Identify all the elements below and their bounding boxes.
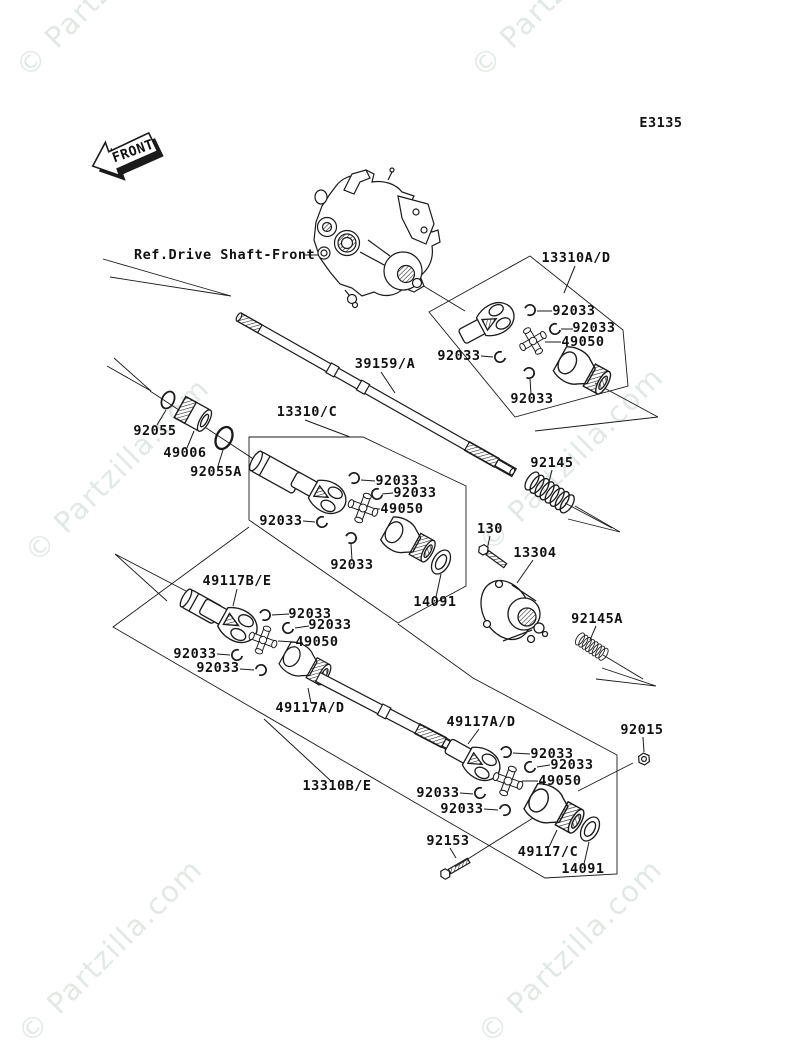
part-label-92033[interactable]: 92033 [393, 485, 436, 501]
part-label-39159A[interactable]: 39159/A [355, 356, 415, 372]
part-label-49006[interactable]: 49006 [163, 445, 206, 461]
yoke-49117C [522, 780, 589, 840]
nut-92015 [636, 752, 651, 766]
part-label-92033[interactable]: 92033 [550, 757, 593, 773]
part-label-13310BE[interactable]: 13310B/E [302, 778, 371, 794]
gearbox-drawing [314, 168, 440, 308]
bolt-92153 [439, 857, 471, 881]
part-label-92033[interactable]: 92033 [416, 785, 459, 801]
bearing-holder-13304 [471, 572, 547, 648]
watermark: © Partzilla.com [11, 852, 209, 1046]
part-label-14091[interactable]: 14091 [561, 861, 604, 877]
part-label-49117C[interactable]: 49117/C [518, 844, 578, 860]
part-label-49117AD[interactable]: 49117A/D [275, 700, 344, 716]
part-label-49117AD[interactable]: 49117A/D [446, 714, 515, 730]
part-label-92033[interactable]: 92033 [308, 617, 351, 633]
part-label-49050[interactable]: 49050 [295, 634, 338, 650]
spider-49050 [343, 488, 382, 527]
part-label-92033[interactable]: 92033 [259, 513, 302, 529]
part-label-92033[interactable]: 92033 [552, 303, 595, 319]
parts-diagram-page: © Partzilla.com © Partzilla.com © Partzi… [0, 0, 800, 1046]
part-label-92033[interactable]: 92033 [510, 391, 553, 407]
part-label-92033[interactable]: 92033 [437, 348, 480, 364]
part-label-92145A[interactable]: 92145A [571, 611, 623, 627]
part-label-13310AD[interactable]: 13310A/D [541, 250, 610, 266]
oring-92055A [212, 424, 236, 451]
watermark: © Partzilla.com [471, 852, 669, 1046]
part-label-92033[interactable]: 92033 [440, 801, 483, 817]
part-label-49050[interactable]: 49050 [561, 334, 604, 350]
part-label-92015[interactable]: 92015 [620, 722, 663, 738]
spider-49050 [513, 321, 552, 360]
diagram-code: E3135 [639, 115, 682, 131]
part-label-92145[interactable]: 92145 [530, 455, 573, 471]
parts-diagram: © Partzilla.com © Partzilla.com © Partzi… [0, 0, 800, 1046]
part-label-13304[interactable]: 13304 [513, 545, 556, 561]
part-label-49050[interactable]: 49050 [380, 501, 423, 517]
part-label-92153[interactable]: 92153 [426, 833, 469, 849]
reference-label: Ref.Drive Shaft-Front [134, 247, 315, 263]
part-label-92055[interactable]: 92055 [133, 423, 176, 439]
part-label-130[interactable]: 130 [477, 521, 503, 537]
part-label-13310C[interactable]: 13310/C [277, 404, 337, 420]
watermark: © Partzilla.com [464, 0, 662, 84]
part-label-92033[interactable]: 92033 [196, 660, 239, 676]
part-label-14091[interactable]: 14091 [413, 594, 456, 610]
part-label-92033[interactable]: 92033 [330, 557, 373, 573]
part-label-92055A[interactable]: 92055A [190, 464, 242, 480]
part-label-49050[interactable]: 49050 [538, 773, 581, 789]
watermark: © Partzilla.com [9, 0, 207, 84]
part-label-49117BE[interactable]: 49117B/E [202, 573, 271, 589]
front-arrow-icon: FRONT [87, 125, 167, 189]
